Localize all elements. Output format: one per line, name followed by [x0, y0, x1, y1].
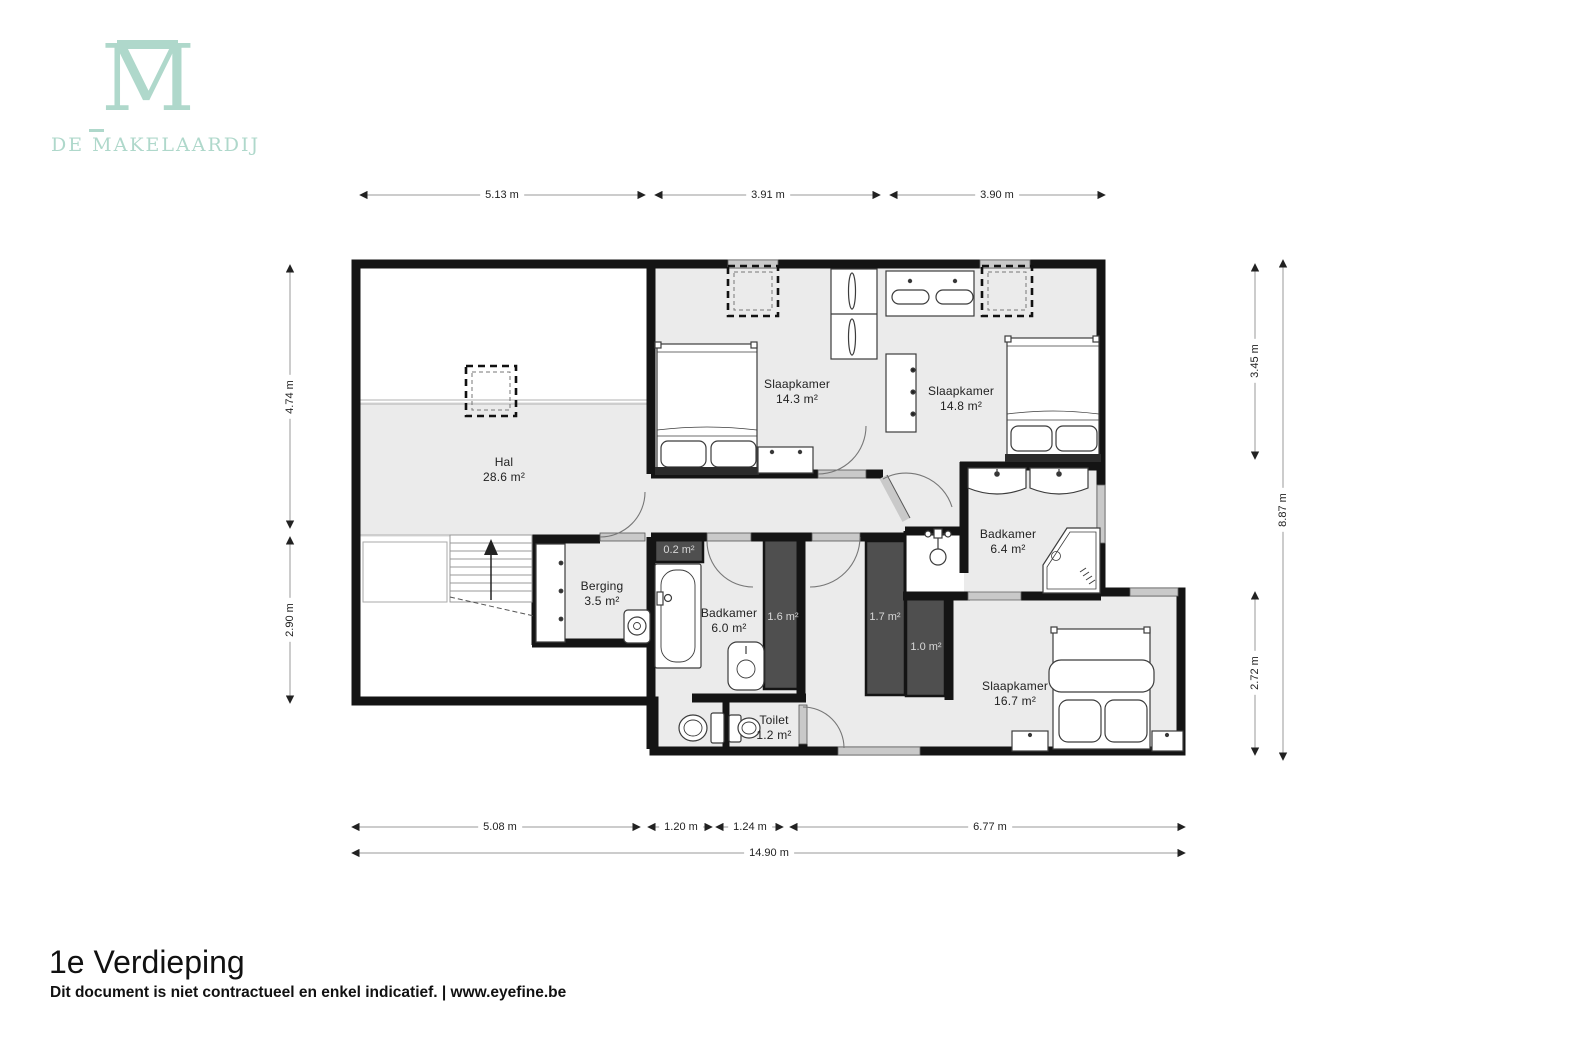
pillow	[1056, 426, 1097, 451]
bed	[655, 342, 759, 475]
room-label-berging: Berging 3.5 m²	[581, 579, 624, 609]
window	[838, 747, 920, 755]
closet-label: 0.2 m²	[663, 544, 694, 556]
dimension-label-bottom-0: 5.08 m	[478, 821, 522, 833]
logo-wordmark-bar	[89, 129, 104, 132]
room-name: Badkamer	[980, 527, 1036, 542]
dimension-label-left-0: 4.74 m	[284, 375, 296, 419]
dimension-label-bottom-2: 1.24 m	[728, 821, 772, 833]
room-name: Berging	[581, 579, 624, 594]
dimension-label-left-1: 2.90 m	[284, 598, 296, 642]
room-area: 1.2 m²	[756, 728, 791, 743]
nightstand	[1152, 731, 1183, 751]
room-area: 14.3 m²	[764, 392, 830, 407]
room-area: 28.6 m²	[483, 470, 525, 485]
room-label-badkamer-1: Badkamer 6.4 m²	[980, 527, 1036, 557]
logo-monogram: M	[98, 33, 198, 125]
dimension-label-right-2: 8.87 m	[1277, 488, 1289, 532]
room-name: Slaapkamer	[928, 384, 994, 399]
room-label-slaapkamer-3: Slaapkamer 16.7 m²	[982, 679, 1048, 709]
washbasin	[728, 642, 764, 690]
room-name: Toilet	[756, 713, 791, 728]
door	[799, 705, 807, 744]
room-area: 6.4 m²	[980, 542, 1036, 557]
page-title: 1e Verdieping	[49, 944, 245, 981]
closet-label: 1.7 m²	[869, 611, 900, 623]
dresser	[886, 271, 974, 316]
dimension-label-total-width: 14.90 m	[744, 847, 794, 859]
closet-label: 1.6 m²	[767, 611, 798, 623]
dresser	[758, 447, 813, 473]
pillow	[1011, 426, 1052, 451]
room-area: 6.0 m²	[701, 621, 757, 636]
bed	[1049, 627, 1154, 749]
floor-plan	[0, 0, 1578, 1050]
page-disclaimer: Dit document is niet contractueel en enk…	[50, 984, 566, 1002]
room-area: 14.8 m²	[928, 399, 994, 414]
room-area: 16.7 m²	[982, 694, 1048, 709]
room-label-toilet: Toilet 1.2 m²	[756, 713, 791, 743]
window	[968, 592, 1021, 600]
closet-label: 1.0 m²	[910, 641, 941, 653]
window	[1130, 588, 1178, 596]
room-label-slaapkamer-2: Slaapkamer 14.8 m²	[928, 384, 994, 414]
door	[707, 533, 751, 541]
toilet	[679, 713, 724, 743]
room-label-slaapkamer-1: Slaapkamer 14.3 m²	[764, 377, 830, 407]
room-name: Badkamer	[701, 606, 757, 621]
dimension-label-bottom-1: 1.20 m	[659, 821, 703, 833]
wardrobe	[831, 269, 877, 359]
dimension-label-right-0: 3.45 m	[1249, 339, 1261, 383]
pillow	[661, 441, 706, 467]
blanket	[1049, 660, 1154, 692]
room-name: Slaapkamer	[982, 679, 1048, 694]
closet-unit	[536, 544, 565, 642]
wardrobe	[886, 354, 916, 432]
bathtub	[655, 564, 701, 668]
pillow	[1059, 700, 1101, 742]
dimension-label-top-1: 3.91 m	[746, 189, 790, 201]
bed	[1005, 336, 1101, 462]
pillow	[1105, 700, 1147, 742]
dimension-label-top-0: 5.13 m	[480, 189, 524, 201]
room-name: Hal	[483, 455, 525, 470]
door	[812, 533, 860, 541]
boiler	[624, 610, 650, 643]
pillow	[711, 441, 756, 467]
room-name: Slaapkamer	[764, 377, 830, 392]
dimension-label-right-1: 2.72 m	[1249, 651, 1261, 695]
room-label-hal: Hal 28.6 m²	[483, 455, 525, 485]
dimension-label-bottom-3: 6.77 m	[968, 821, 1012, 833]
nightstand	[1012, 731, 1048, 751]
room-label-badkamer-2: Badkamer 6.0 m²	[701, 606, 757, 636]
room-area: 3.5 m²	[581, 594, 624, 609]
logo-wordmark: DE MAKELAARDIJ	[51, 134, 260, 156]
dimension-label-top-2: 3.90 m	[975, 189, 1019, 201]
